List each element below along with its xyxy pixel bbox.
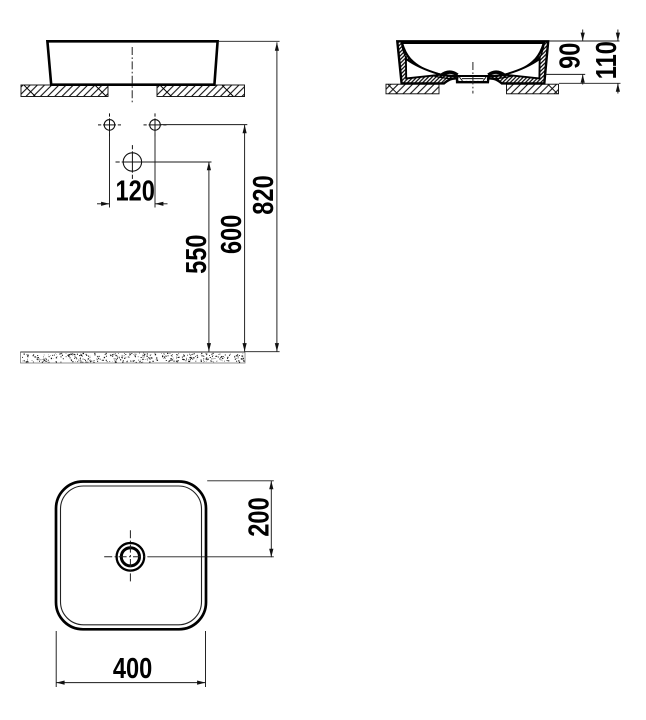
svg-text:550: 550 — [181, 234, 213, 273]
svg-text:120: 120 — [115, 176, 154, 208]
svg-text:110: 110 — [591, 41, 623, 79]
svg-text:400: 400 — [113, 653, 152, 685]
svg-text:600: 600 — [216, 215, 248, 254]
svg-text:200: 200 — [244, 497, 276, 536]
svg-text:90: 90 — [555, 43, 587, 69]
svg-text:820: 820 — [248, 175, 280, 214]
